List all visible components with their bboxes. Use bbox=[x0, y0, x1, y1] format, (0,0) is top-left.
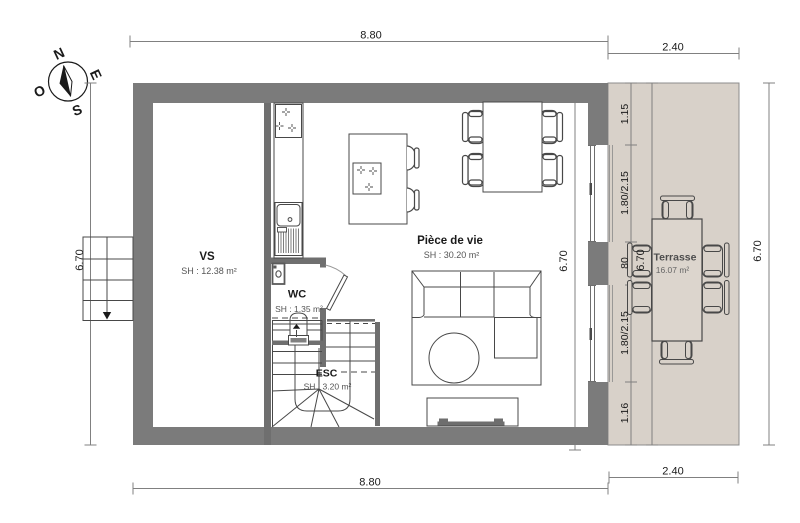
svg-text:WC: WC bbox=[288, 289, 306, 301]
svg-text:80: 80 bbox=[619, 257, 631, 269]
svg-text:SH : 12.38 m²: SH : 12.38 m² bbox=[181, 266, 237, 276]
svg-text:2.40: 2.40 bbox=[662, 466, 683, 478]
svg-text:1.80/2.15: 1.80/2.15 bbox=[619, 311, 631, 355]
svg-text:6.70: 6.70 bbox=[752, 240, 764, 261]
svg-text:2.40: 2.40 bbox=[662, 42, 683, 54]
svg-text:6.70: 6.70 bbox=[635, 249, 647, 270]
svg-text:16.07 m²: 16.07 m² bbox=[656, 265, 690, 275]
svg-text:SH : 3.20 m²: SH : 3.20 m² bbox=[304, 382, 352, 392]
svg-text:8.80: 8.80 bbox=[360, 30, 381, 42]
svg-text:1.80/2.15: 1.80/2.15 bbox=[619, 171, 631, 215]
svg-text:1.16: 1.16 bbox=[619, 403, 631, 424]
svg-text:SH : 30.20 m²: SH : 30.20 m² bbox=[424, 250, 480, 260]
svg-text:SH : 1.35 m²: SH : 1.35 m² bbox=[275, 304, 323, 314]
svg-text:VS: VS bbox=[199, 251, 215, 263]
svg-text:Terrasse: Terrasse bbox=[653, 252, 696, 264]
svg-text:1.15: 1.15 bbox=[619, 104, 631, 125]
svg-text:6.70: 6.70 bbox=[558, 250, 570, 271]
svg-text:6.70: 6.70 bbox=[74, 249, 86, 270]
svg-text:ESC: ESC bbox=[316, 368, 338, 380]
svg-text:8.80: 8.80 bbox=[359, 477, 380, 489]
svg-text:Pièce de vie: Pièce de vie bbox=[417, 235, 483, 247]
